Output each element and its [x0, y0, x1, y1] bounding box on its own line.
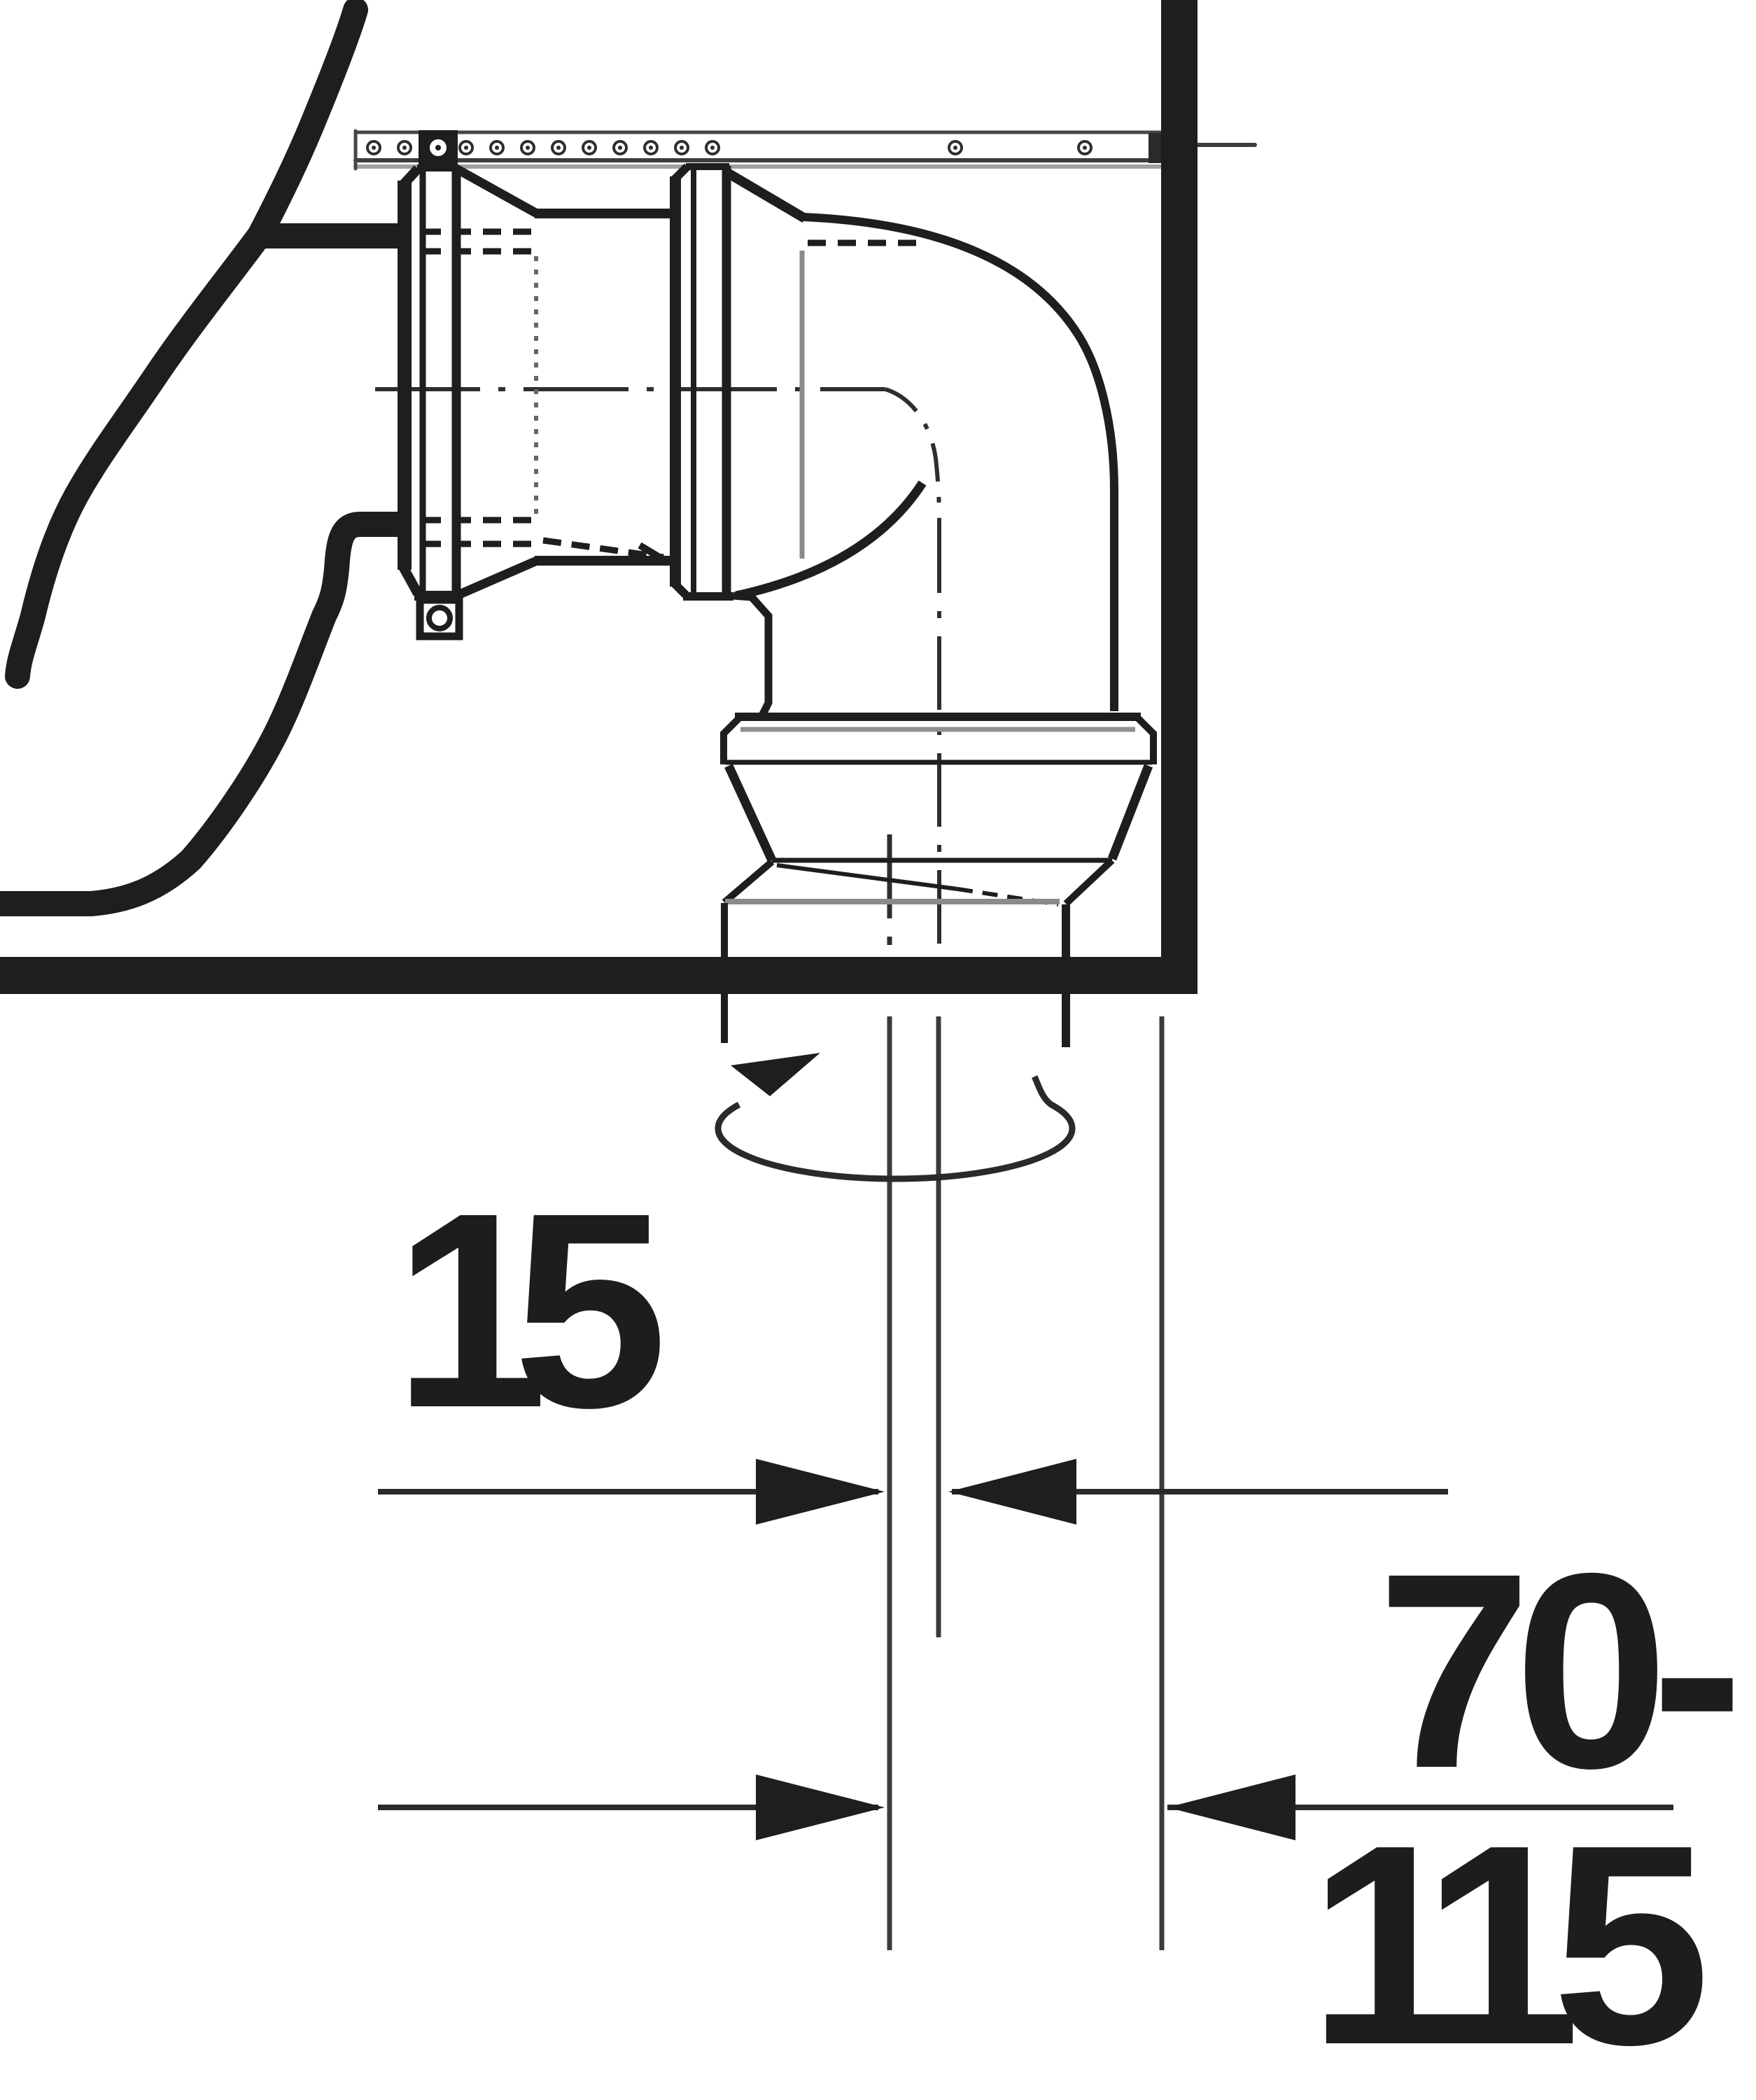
svg-text:115: 115 — [1308, 1786, 1703, 2100]
svg-text:15: 15 — [393, 1156, 661, 1466]
svg-text:70-: 70- — [1377, 1516, 1734, 1826]
